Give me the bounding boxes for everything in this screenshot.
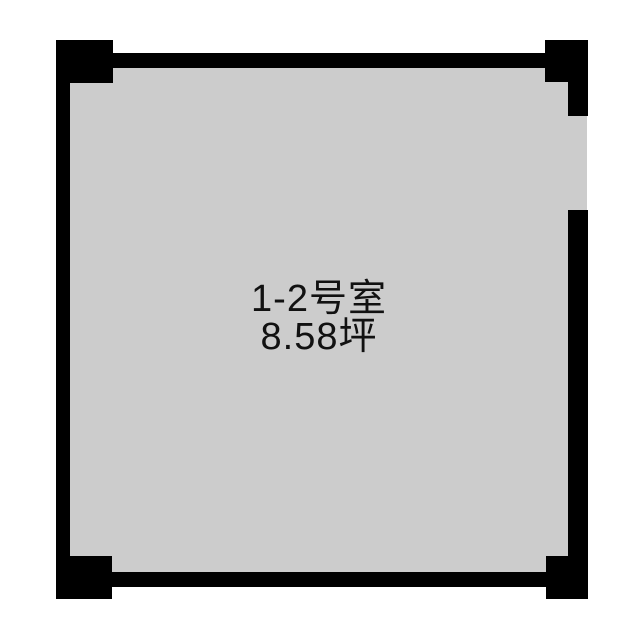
room-label: 1-2号室 8.58坪 (70, 280, 568, 356)
floor-plan: 1-2号室 8.58坪 (0, 0, 640, 640)
wall-right-lower (568, 210, 588, 587)
door-opening (568, 116, 587, 210)
wall-top (56, 53, 588, 68)
room-area: 8.58坪 (70, 318, 568, 356)
room-name: 1-2号室 (70, 280, 568, 318)
wall-left (56, 53, 70, 587)
pillar-top-left (56, 40, 113, 83)
wall-bottom (56, 572, 588, 587)
pillar-bottom-left (56, 556, 112, 599)
pillar-top-right (545, 40, 588, 82)
pillar-bottom-right (546, 556, 588, 599)
